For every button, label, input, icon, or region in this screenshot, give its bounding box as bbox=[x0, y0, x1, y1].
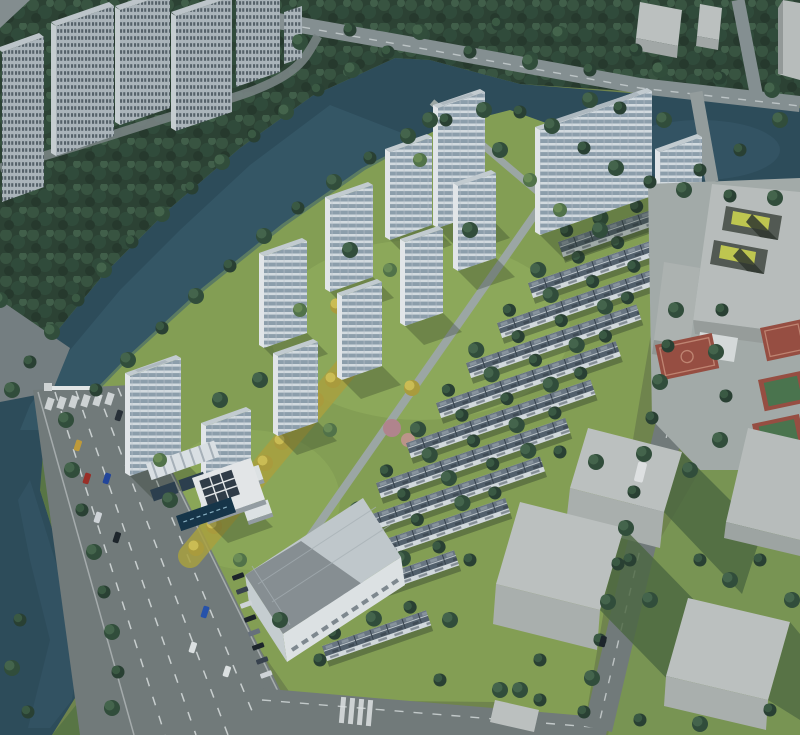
aerial-render: 12 bright white residential towers with … bbox=[0, 0, 800, 735]
aerial-render-canvas bbox=[0, 0, 800, 735]
render-tint bbox=[0, 0, 800, 735]
